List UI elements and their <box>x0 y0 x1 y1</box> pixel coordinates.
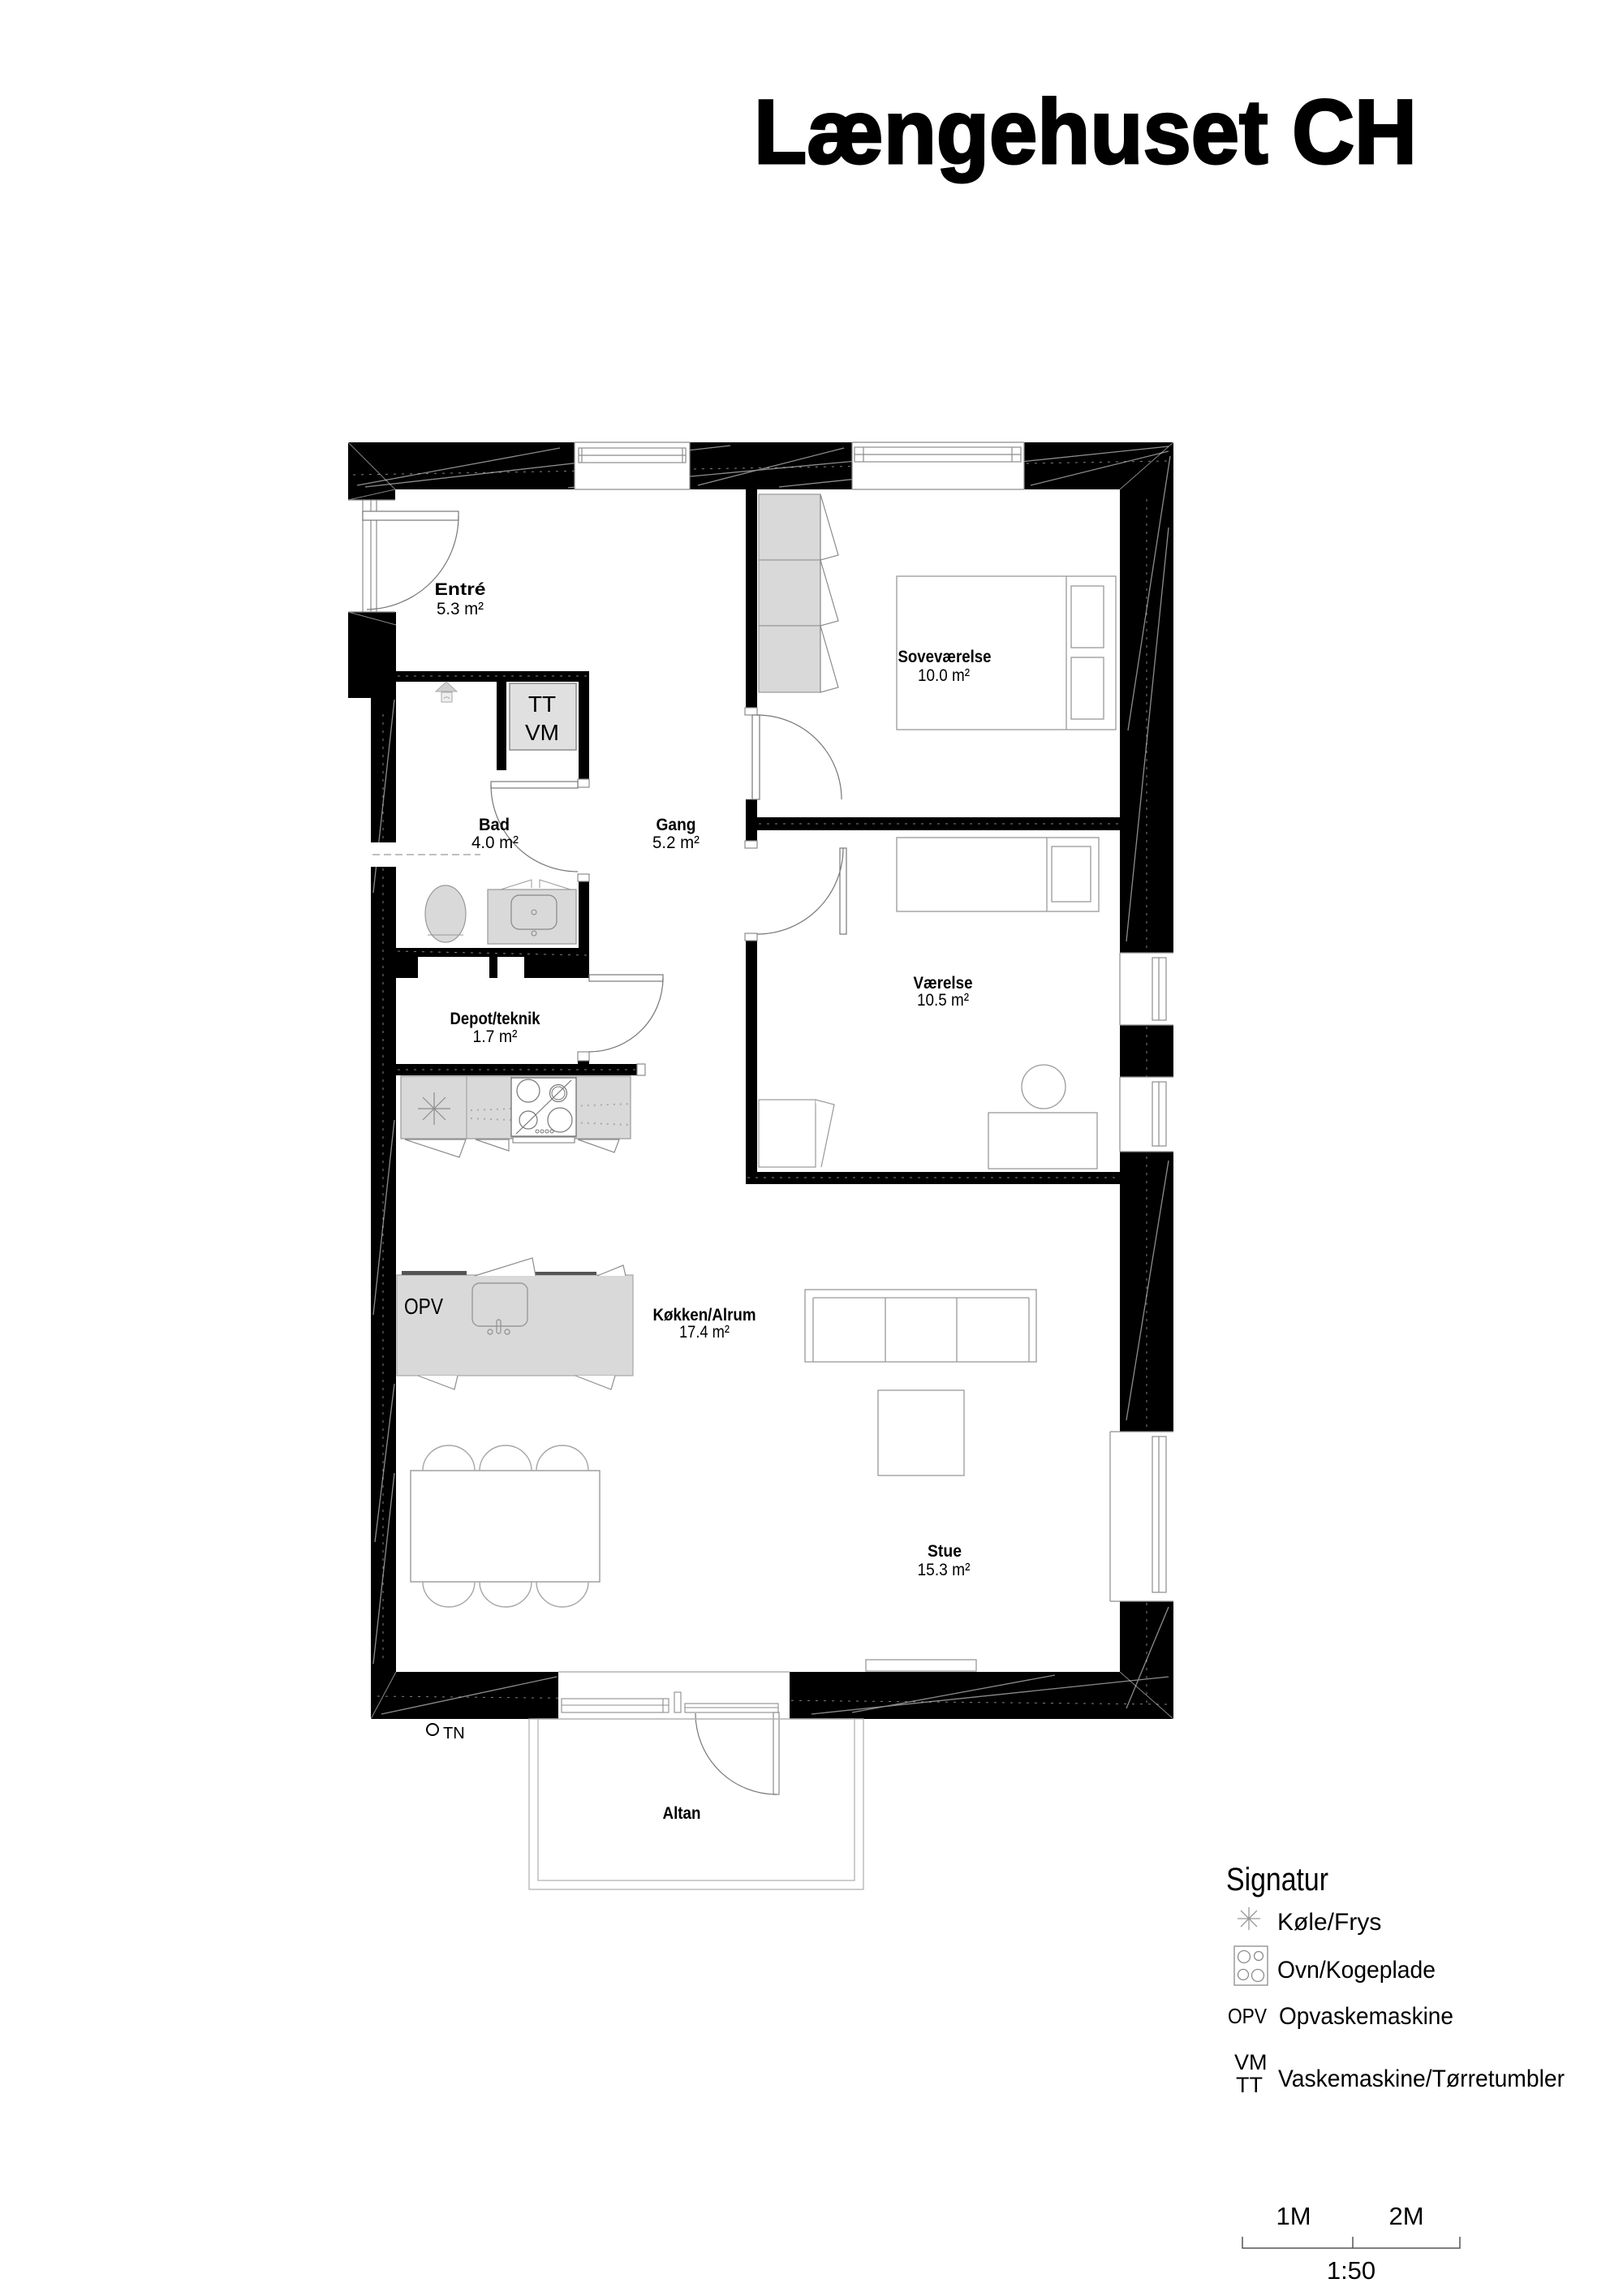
svg-text:15.3 m²: 15.3 m² <box>918 1560 971 1579</box>
svg-text:TN: TN <box>443 1725 465 1742</box>
svg-text:5.2 m²: 5.2 m² <box>652 833 700 852</box>
svg-text:OPV: OPV <box>404 1294 443 1319</box>
svg-text:Soveværelse: Soveværelse <box>898 647 992 666</box>
svg-text:TT: TT <box>1236 2073 1263 2097</box>
svg-text:Opvaskemaskine: Opvaskemaskine <box>1279 2003 1453 2030</box>
svg-text:4.0 m²: 4.0 m² <box>471 833 519 852</box>
svg-text:5.3 m²: 5.3 m² <box>437 599 484 618</box>
svg-text:Signatur: Signatur <box>1226 1862 1328 1898</box>
svg-text:Ovn/Kogeplade: Ovn/Kogeplade <box>1277 1957 1436 1984</box>
svg-text:17.4 m²: 17.4 m² <box>679 1322 730 1342</box>
svg-text:Bad: Bad <box>479 815 510 834</box>
svg-text:Køle/Frys: Køle/Frys <box>1277 1909 1381 1936</box>
svg-text:Vaskemaskine/Tørretumbler: Vaskemaskine/Tørretumbler <box>1278 2066 1565 2092</box>
svg-text:10.0 m²: 10.0 m² <box>918 666 970 685</box>
svg-text:10.5 m²: 10.5 m² <box>917 990 969 1010</box>
svg-text:1:50: 1:50 <box>1327 2256 1375 2285</box>
svg-text:Stue: Stue <box>928 1541 962 1561</box>
svg-text:Længehuset CH: Længehuset CH <box>754 81 1417 183</box>
svg-text:VM: VM <box>1234 2050 1268 2074</box>
svg-text:1M: 1M <box>1276 2202 1311 2230</box>
svg-text:Entré: Entré <box>435 579 486 599</box>
svg-text:1.7 m²: 1.7 m² <box>473 1027 518 1046</box>
svg-text:Gang: Gang <box>657 815 696 834</box>
svg-text:VM: VM <box>525 720 559 745</box>
svg-text:2M: 2M <box>1388 2202 1423 2230</box>
svg-text:TT: TT <box>528 691 556 717</box>
svg-text:Depot/teknik: Depot/teknik <box>450 1009 540 1028</box>
svg-text:OPV: OPV <box>1228 2004 1268 2028</box>
svg-text:Altan: Altan <box>663 1803 701 1823</box>
